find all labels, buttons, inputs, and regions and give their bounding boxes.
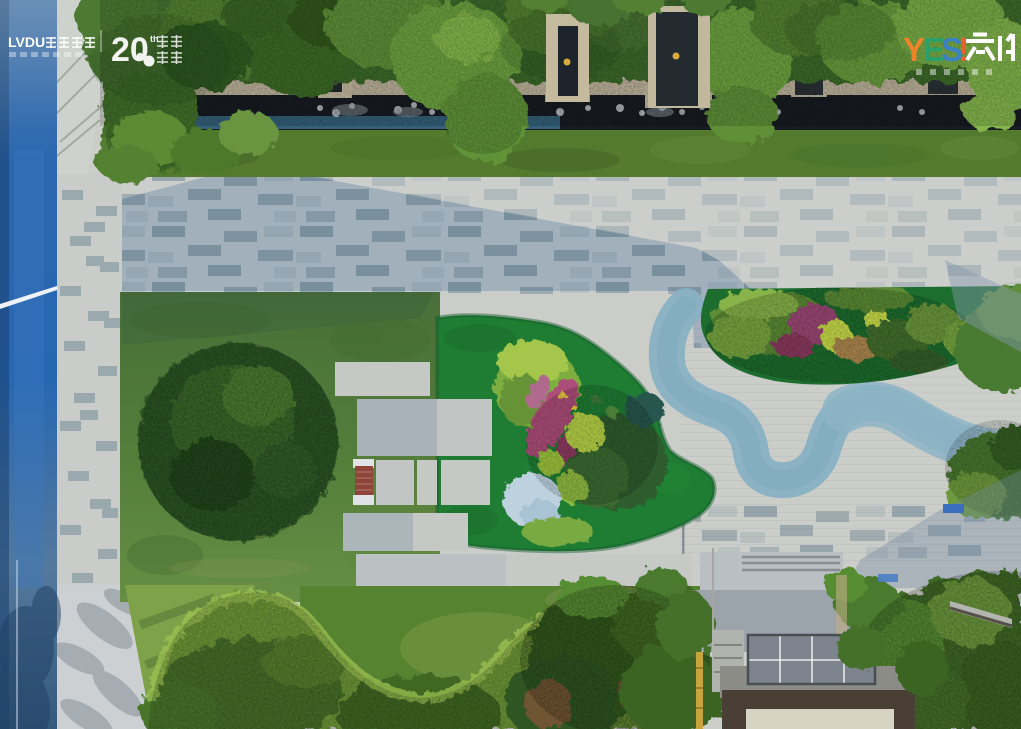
svg-text:LVDU: LVDU — [8, 34, 45, 50]
svg-text:Y: Y — [903, 31, 925, 68]
svg-text:th: th — [150, 34, 159, 44]
svg-text:!: ! — [958, 31, 969, 68]
svg-text:20: 20 — [111, 31, 149, 69]
